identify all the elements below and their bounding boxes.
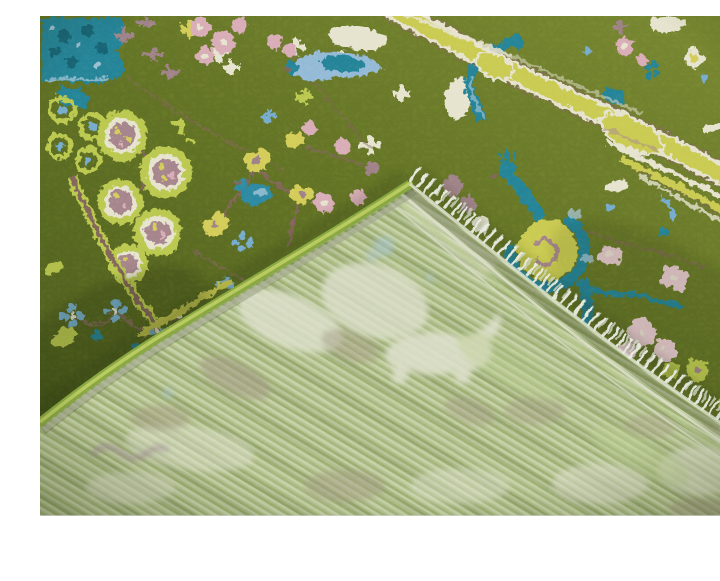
photo-area	[40, 16, 720, 518]
rug-photo	[40, 16, 720, 565]
photo-edge-hairline	[40, 515, 720, 516]
rug-photo-canvas	[40, 16, 720, 565]
vignette	[40, 16, 720, 516]
white-margin	[40, 516, 720, 565]
